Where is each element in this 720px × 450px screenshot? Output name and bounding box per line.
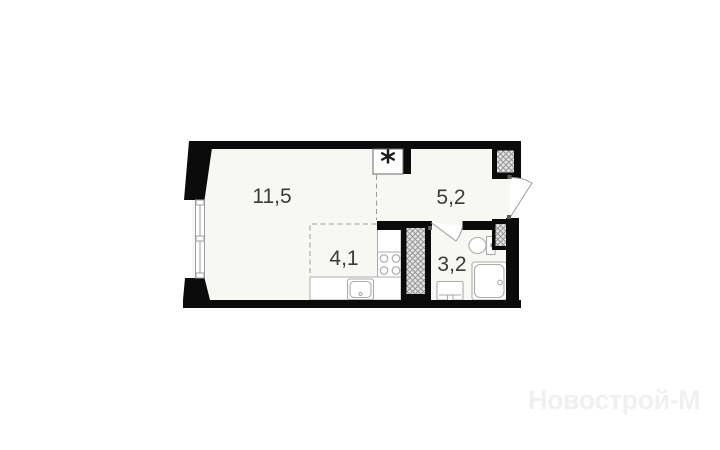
entrance-door-swing: [510, 177, 532, 217]
washbasin-icon: [437, 282, 463, 301]
wall-top: [189, 141, 521, 149]
vent-shaft-top-right-icon: [497, 151, 514, 173]
toilet-icon: [469, 237, 495, 255]
developer-watermark: Новострой-М: [528, 385, 708, 416]
room-label-kitchen: 4,1: [329, 247, 358, 270]
vent-shaft-center-icon: [407, 228, 426, 294]
room-label-hallway: 5,2: [436, 186, 465, 209]
vent-asterisk-icon: *: [380, 145, 396, 180]
room-label-bathroom: 3,2: [437, 253, 466, 276]
bathtub-icon: [472, 262, 507, 300]
kitchen-sink-icon: [348, 279, 374, 300]
kitchen-counter-column: [378, 230, 402, 278]
vent-shaft-bathroom-icon: [496, 224, 507, 246]
room-label-living: 11,5: [252, 185, 291, 208]
wall-bottom: [183, 300, 521, 308]
floor-plan: * 11,5 5,2 4,1 3,2: [0, 0, 720, 450]
wall-vent-stub: [403, 144, 411, 174]
window: [196, 200, 205, 278]
